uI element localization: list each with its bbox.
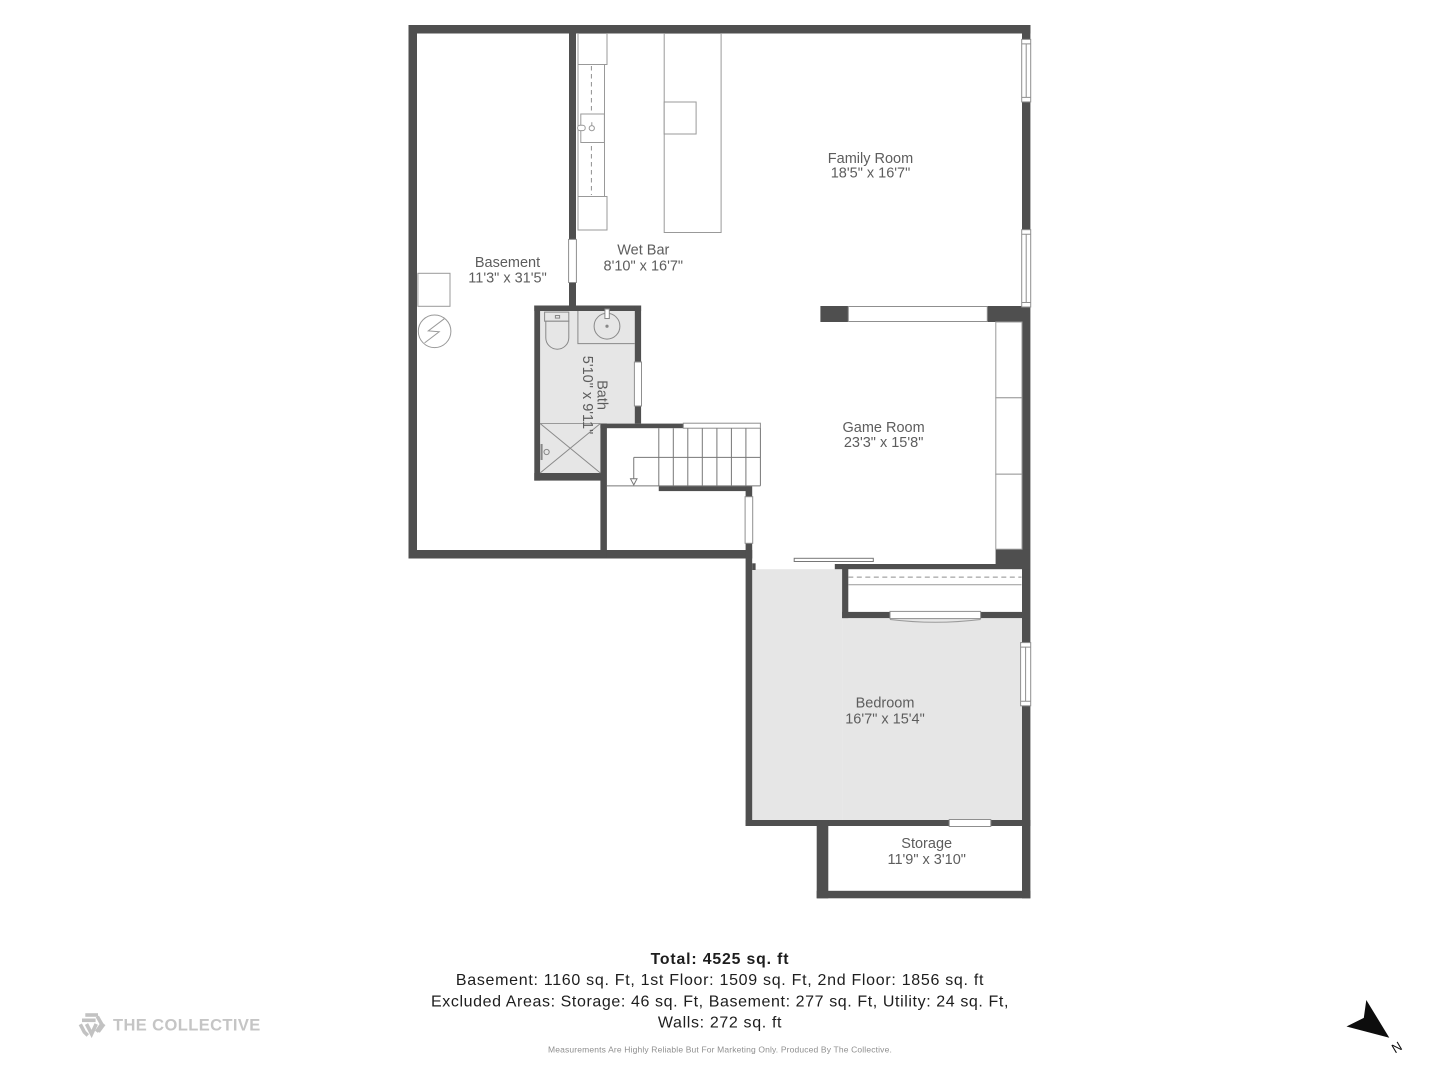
- svg-text:Basement: Basement: [475, 255, 540, 271]
- svg-text:Storage: Storage: [901, 836, 952, 852]
- svg-text:Total: 4525 sq. ft: Total: 4525 sq. ft: [651, 951, 790, 968]
- svg-text:Excluded Areas: Storage: 46 sq: Excluded Areas: Storage: 46 sq. Ft, Base…: [431, 994, 1009, 1011]
- svg-text:16'7" x 15'4": 16'7" x 15'4": [845, 712, 925, 728]
- svg-text:Bedroom: Bedroom: [856, 696, 915, 712]
- svg-text:THE COLLECTIVE: THE COLLECTIVE: [113, 1017, 261, 1035]
- svg-text:Walls: 272 sq. ft: Walls: 272 sq. ft: [658, 1015, 782, 1032]
- svg-text:Family Room: Family Room: [828, 151, 913, 167]
- svg-text:5'10" x 9'11": 5'10" x 9'11": [579, 356, 595, 434]
- svg-text:Wet Bar: Wet Bar: [617, 243, 669, 259]
- svg-text:Basement: 1160 sq. Ft, 1st Flo: Basement: 1160 sq. Ft, 1st Floor: 1509 s…: [456, 972, 984, 989]
- svg-text:11'9" x 3'10": 11'9" x 3'10": [887, 852, 965, 868]
- svg-text:8'10" x 16'7": 8'10" x 16'7": [604, 259, 684, 275]
- svg-text:Game Room: Game Room: [842, 420, 924, 436]
- svg-text:23'3" x 15'8": 23'3" x 15'8": [844, 435, 924, 451]
- svg-text:11'3" x 31'5": 11'3" x 31'5": [468, 271, 546, 287]
- svg-text:18'5" x 16'7": 18'5" x 16'7": [831, 166, 911, 182]
- svg-text:Measurements Are Highly Reliab: Measurements Are Highly Reliable But For…: [548, 1045, 892, 1055]
